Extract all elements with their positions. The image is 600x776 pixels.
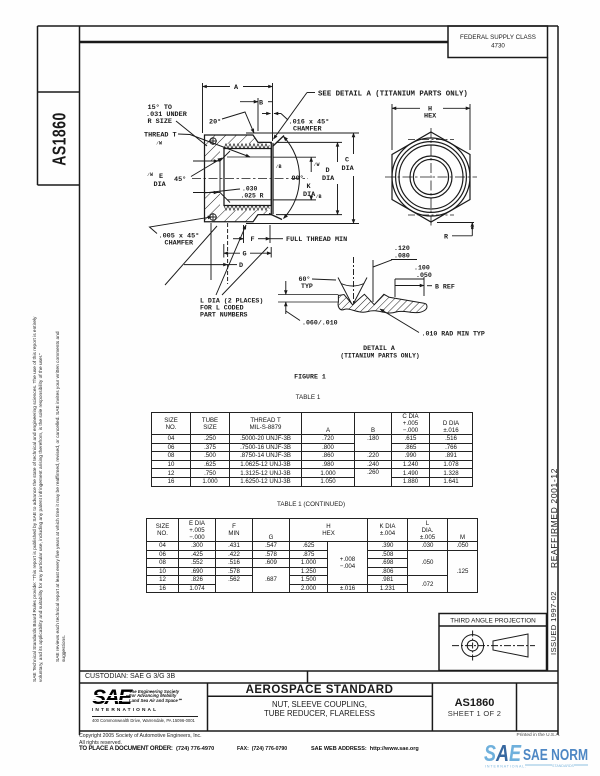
svg-text:TYP: TYP: [301, 283, 313, 290]
svg-text:.080: .080: [394, 253, 410, 260]
svg-text:SEE DETAIL A (TITANIUM PARTS O: SEE DETAIL A (TITANIUM PARTS ONLY): [318, 91, 468, 99]
svg-text:∕W: ∕W: [156, 141, 162, 147]
svg-text:∕W: ∕W: [314, 162, 320, 168]
svg-text:PART NUMBERS: PART NUMBERS: [200, 312, 248, 319]
svg-text:E: E: [159, 173, 163, 181]
svg-text:.030: .030: [242, 186, 258, 193]
svg-text:THREAD T: THREAD T: [144, 132, 177, 140]
svg-text:R SIZE: R SIZE: [148, 118, 172, 126]
svg-text:4730: 4730: [491, 43, 505, 50]
svg-text:DIA: DIA: [303, 191, 316, 199]
svg-text:B: B: [259, 100, 263, 108]
svg-text:FEDERAL SUPPLY CLASS: FEDERAL SUPPLY CLASS: [460, 34, 536, 41]
svg-text:FULL THREAD MIN: FULL THREAD MIN: [286, 236, 347, 244]
svg-text:R: R: [444, 234, 449, 242]
svg-text:STANDARDS: STANDARDS: [552, 764, 575, 768]
svg-text:.100: .100: [414, 265, 430, 272]
svg-text:SAE: SAE: [484, 740, 522, 766]
svg-text:DIA: DIA: [322, 175, 335, 183]
svg-text:DIA: DIA: [154, 181, 167, 189]
svg-text:FOR L CODED: FOR L CODED: [200, 305, 244, 312]
svg-text:L DIA (2 PLACES): L DIA (2 PLACES): [200, 298, 263, 305]
svg-text:K: K: [307, 183, 312, 191]
svg-text:DETAIL A: DETAIL A: [363, 345, 395, 352]
svg-text:D: D: [239, 262, 243, 270]
svg-text:∕B: ∕B: [316, 194, 322, 200]
svg-text:.025 R: .025 R: [241, 193, 264, 200]
svg-text:C: C: [345, 157, 349, 165]
svg-text:DIA: DIA: [342, 165, 355, 173]
svg-text:∕W: ∕W: [147, 172, 153, 178]
svg-text:INTERNATIONAL.: INTERNATIONAL.: [485, 765, 527, 769]
svg-text:THIRD ANGLE PROJECTION: THIRD ANGLE PROJECTION: [450, 618, 536, 625]
svg-text:60°: 60°: [299, 275, 311, 283]
svg-text:B REF: B REF: [435, 284, 455, 291]
svg-text:∕B: ∕B: [276, 164, 282, 170]
svg-text:.050: .050: [416, 272, 432, 279]
svg-text:.060/.010: .060/.010: [302, 320, 338, 327]
svg-text:.120: .120: [394, 245, 410, 252]
svg-text:G: G: [243, 251, 247, 259]
svg-text:HEX: HEX: [424, 113, 437, 121]
svg-text:(TITANIUM PARTS ONLY): (TITANIUM PARTS ONLY): [340, 353, 419, 360]
svg-text:D: D: [326, 167, 330, 175]
svg-text:SAE NORM: SAE NORM: [523, 747, 588, 764]
svg-text:.010 RAD MIN TYP: .010 RAD MIN TYP: [422, 331, 485, 338]
svg-text:90°: 90°: [292, 174, 304, 183]
svg-text:CHAMFER: CHAMFER: [165, 240, 194, 248]
svg-text:A: A: [234, 84, 239, 92]
svg-text:FIGURE 1: FIGURE 1: [294, 374, 326, 381]
svg-text:45°: 45°: [174, 175, 186, 184]
svg-text:CHAMFER: CHAMFER: [293, 126, 322, 134]
svg-text:20°: 20°: [209, 118, 221, 127]
svg-text:F: F: [251, 236, 255, 244]
